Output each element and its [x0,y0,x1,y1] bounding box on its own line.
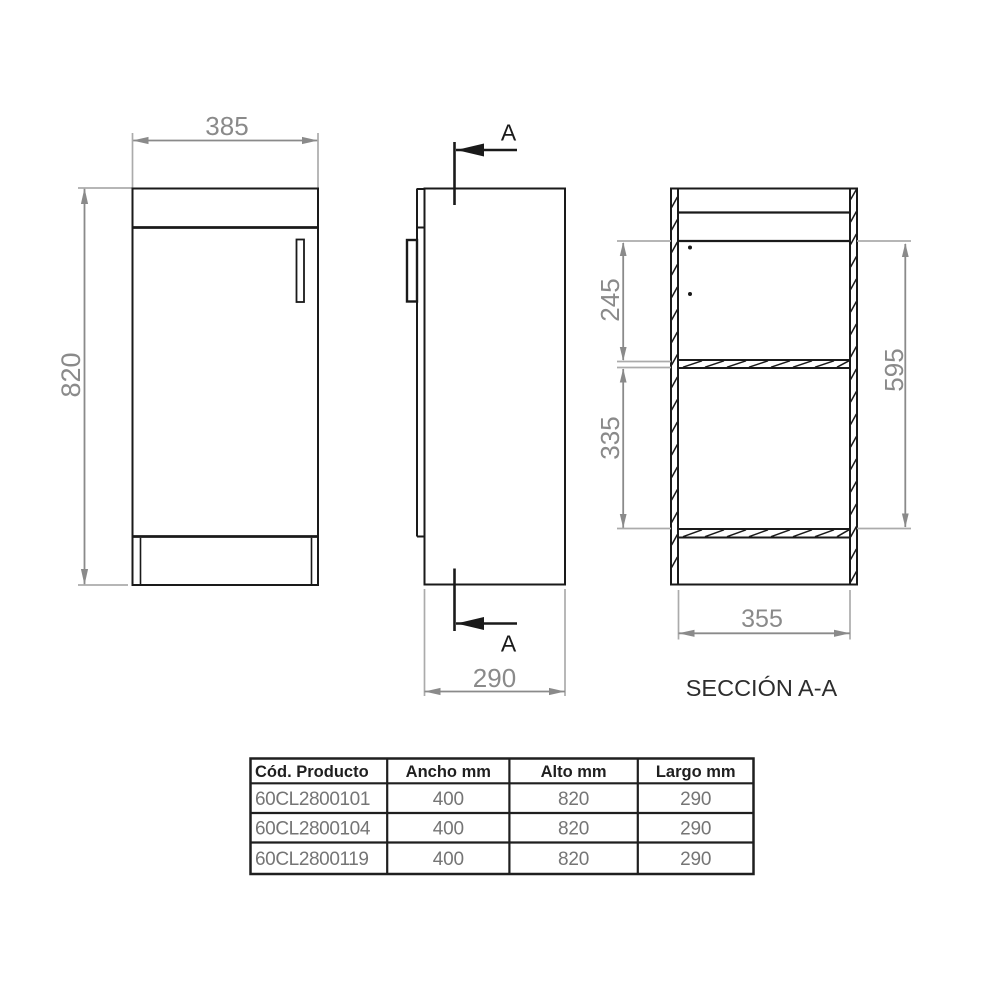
svg-text:820: 820 [558,819,589,840]
svg-text:Largo mm: Largo mm [656,763,736,781]
svg-text:60CL2800119: 60CL2800119 [255,849,369,870]
svg-text:820: 820 [558,789,589,810]
svg-text:400: 400 [433,849,464,870]
svg-text:Alto mm: Alto mm [541,763,607,781]
svg-text:Cód. Producto: Cód. Producto [255,763,369,781]
svg-text:355: 355 [741,605,783,633]
svg-text:400: 400 [433,819,464,840]
svg-text:60CL2800101: 60CL2800101 [255,789,370,810]
svg-text:290: 290 [473,663,516,693]
svg-text:290: 290 [680,789,711,810]
svg-text:SECCIÓN A-A: SECCIÓN A-A [686,675,838,701]
svg-text:A: A [501,120,517,146]
svg-text:245: 245 [595,278,625,321]
svg-text:A: A [501,631,517,657]
svg-text:60CL2800104: 60CL2800104 [255,819,371,840]
svg-text:335: 335 [595,416,625,459]
svg-text:290: 290 [680,819,711,840]
svg-text:385: 385 [205,111,248,141]
svg-text:290: 290 [680,849,711,870]
svg-text:820: 820 [558,849,589,870]
svg-text:400: 400 [433,789,464,810]
svg-text:820: 820 [56,352,86,397]
svg-text:Ancho mm: Ancho mm [406,763,491,781]
